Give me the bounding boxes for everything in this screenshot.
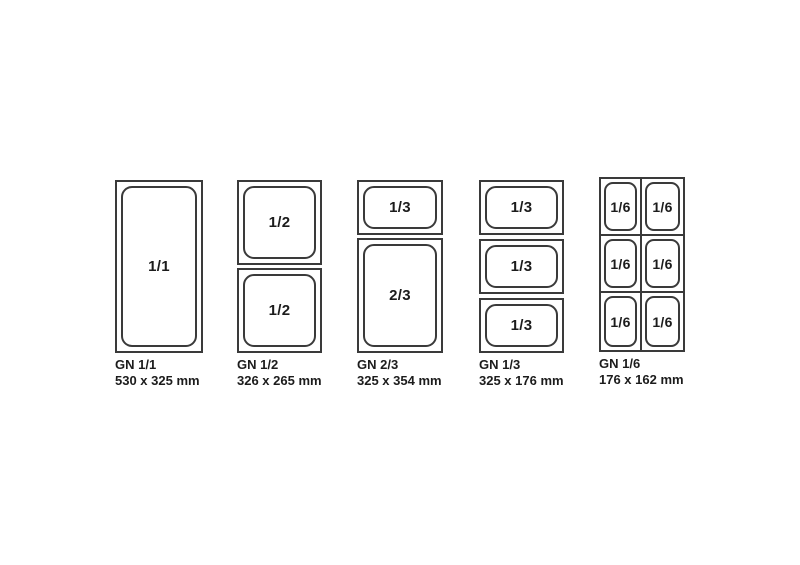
gn-1-6-pan-5: 1/6 xyxy=(604,296,637,347)
pan-label: 1/6 xyxy=(652,199,672,215)
gn-2-3-container-top: 1/3 xyxy=(357,180,443,235)
gn-1-2-box-stack: 1/2 1/2 xyxy=(237,180,322,353)
gn-1-3-pan-2: 1/3 xyxy=(485,245,558,288)
gn-1-6-grid: 1/6 1/6 1/6 1/6 1/6 xyxy=(599,177,685,352)
pan-label: 1/2 xyxy=(269,302,291,319)
caption-dimensions: 325 x 354 mm xyxy=(357,373,443,389)
gn-1-6-pan-1: 1/6 xyxy=(604,182,637,231)
caption-name: GN 1/6 xyxy=(599,356,685,372)
pan-label: 2/3 xyxy=(389,287,411,304)
pan-label: 1/6 xyxy=(652,256,672,272)
gn-1-6-cell-3: 1/6 xyxy=(601,236,642,293)
gn-1-3-container-3: 1/3 xyxy=(479,298,564,353)
pan-label: 1/2 xyxy=(269,214,291,231)
pan-label: 1/3 xyxy=(511,258,533,275)
figure-gn-1-6: 1/6 1/6 1/6 1/6 1/6 xyxy=(599,177,685,388)
figure-gn-1-1: 1/1 GN 1/1 530 x 325 mm xyxy=(115,180,203,389)
gn-1-3-container-1: 1/3 xyxy=(479,180,564,235)
pan-label: 1/6 xyxy=(652,314,672,330)
gn-1-2-container-top: 1/2 xyxy=(237,180,322,265)
caption-dimensions: 176 x 162 mm xyxy=(599,372,685,388)
gn-2-3-container-bottom: 2/3 xyxy=(357,238,443,353)
pan-label: 1/3 xyxy=(511,199,533,216)
gn-1-3-pan-3: 1/3 xyxy=(485,304,558,347)
caption-dimensions: 530 x 325 mm xyxy=(115,373,203,389)
gn-1-6-cell-6: 1/6 xyxy=(642,293,683,350)
gn-2-3-pan-twothirds: 2/3 xyxy=(363,244,437,347)
gn-1-2-pan-top: 1/2 xyxy=(243,186,316,259)
pan-label: 1/6 xyxy=(610,199,630,215)
gn-1-2-caption: GN 1/2 326 x 265 mm xyxy=(237,357,322,389)
gn-1-6-cell-1: 1/6 xyxy=(601,179,642,236)
pan-label: 1/3 xyxy=(511,317,533,334)
gn-2-3-pan-third: 1/3 xyxy=(363,186,437,229)
gn-1-6-cell-4: 1/6 xyxy=(642,236,683,293)
gn-1-6-pan-3: 1/6 xyxy=(604,239,637,288)
gn-1-1-container: 1/1 xyxy=(115,180,203,353)
caption-dimensions: 326 x 265 mm xyxy=(237,373,322,389)
gn-1-3-caption: GN 1/3 325 x 176 mm xyxy=(479,357,564,389)
gn-1-6-cell-2: 1/6 xyxy=(642,179,683,236)
gn-2-3-box-stack: 1/3 2/3 xyxy=(357,180,443,353)
figure-gn-2-3: 1/3 2/3 GN 2/3 325 x 354 mm xyxy=(357,180,443,389)
figure-gn-1-3: 1/3 1/3 1/3 GN 1/3 325 x 176 mm xyxy=(479,180,564,389)
gn-1-6-pan-6: 1/6 xyxy=(645,296,680,347)
gn-2-3-caption: GN 2/3 325 x 354 mm xyxy=(357,357,443,389)
gn-1-3-box-stack: 1/3 1/3 1/3 xyxy=(479,180,564,353)
pan-label: 1/1 xyxy=(148,258,170,275)
gn-1-6-pan-2: 1/6 xyxy=(645,182,680,231)
figure-gn-1-2: 1/2 1/2 GN 1/2 326 x 265 mm xyxy=(237,180,322,389)
gn-1-6-caption: GN 1/6 176 x 162 mm xyxy=(599,356,685,388)
caption-name: GN 1/2 xyxy=(237,357,322,373)
gn-pan-sizes-diagram: 1/1 GN 1/1 530 x 325 mm 1/2 1/2 GN 1/2 xyxy=(0,0,800,565)
pan-label: 1/3 xyxy=(389,199,411,216)
gn-1-1-caption: GN 1/1 530 x 325 mm xyxy=(115,357,203,389)
gn-1-2-pan-bottom: 1/2 xyxy=(243,274,316,347)
gn-1-3-container-2: 1/3 xyxy=(479,239,564,294)
pan-label: 1/6 xyxy=(610,314,630,330)
gn-1-6-cell-5: 1/6 xyxy=(601,293,642,350)
caption-dimensions: 325 x 176 mm xyxy=(479,373,564,389)
gn-1-6-pan-4: 1/6 xyxy=(645,239,680,288)
gn-1-2-container-bottom: 1/2 xyxy=(237,268,322,353)
gn-1-3-pan-1: 1/3 xyxy=(485,186,558,229)
pan-label: 1/6 xyxy=(610,256,630,272)
caption-name: GN 1/1 xyxy=(115,357,203,373)
gn-1-1-box-stack: 1/1 xyxy=(115,180,203,353)
caption-name: GN 2/3 xyxy=(357,357,443,373)
gn-1-1-pan: 1/1 xyxy=(121,186,197,347)
caption-name: GN 1/3 xyxy=(479,357,564,373)
